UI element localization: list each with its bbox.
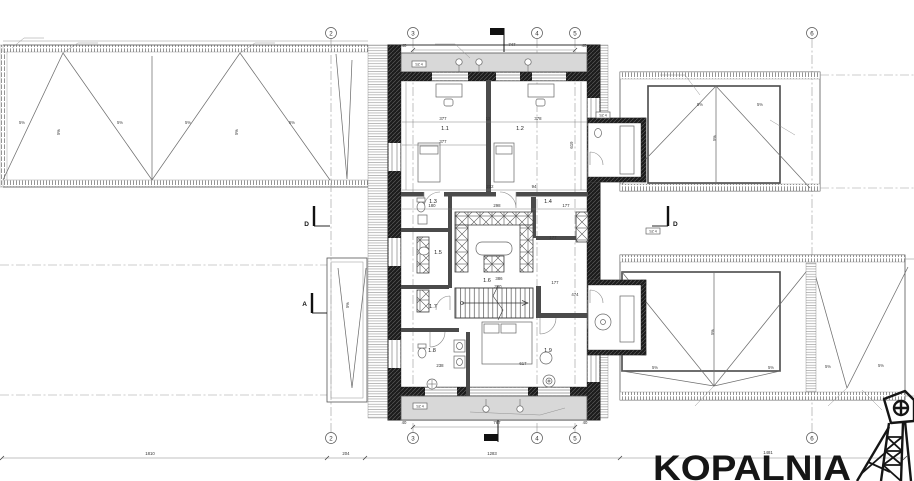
- dim-label: 180: [428, 203, 436, 208]
- logo: KOPALNIA: [653, 391, 914, 481]
- dim-label: 377: [439, 139, 447, 144]
- top-terrace: SZ 4: [401, 44, 587, 72]
- slope-label: 5%: [19, 120, 25, 125]
- grid-label-6: 6: [810, 30, 814, 37]
- slope-label: 5%: [56, 129, 61, 135]
- floor-plan-sheet: 5% 5% 5% 5% 5% 5% 5% 2 3 4 5 6 2 3 4: [0, 0, 914, 481]
- mine-headframe-icon: [857, 391, 914, 481]
- room-label-1-1: 1.1: [441, 126, 449, 132]
- dim-label: 232: [486, 184, 494, 189]
- room-label-1-8: 1.8: [428, 348, 436, 354]
- central-building: SZ 4 SZ 4: [368, 28, 608, 442]
- dim-label-total: 1810: [145, 451, 155, 456]
- grid-bubbles-bottom: 2 3 4 5 6: [326, 433, 818, 444]
- section-label-d: D: [304, 221, 309, 228]
- room-label-1-4: 1.4: [544, 199, 552, 205]
- right-roof-bottom: 5% 5% 5% 5% 5%: [620, 255, 914, 410]
- room-label-1-9: 1.9: [544, 348, 552, 354]
- dim-label: 386: [495, 276, 503, 281]
- left-roof-plan: 5% 5% 5% 5% 5% 5%: [0, 38, 368, 187]
- logo-wordmark: KOPALNIA: [653, 449, 851, 481]
- dim-label: 238: [436, 363, 444, 368]
- dim-label: 40: [402, 43, 407, 48]
- slope-label: 5%: [289, 120, 295, 125]
- dim-label: 177: [562, 203, 570, 208]
- top-dimension: 747 40 40: [402, 28, 587, 52]
- slope-label: 5%: [825, 364, 831, 369]
- slope-label: 5%: [878, 363, 884, 368]
- top-wall: [401, 72, 587, 81]
- grid-label-2: 2: [329, 435, 333, 442]
- slope-label: 5%: [712, 135, 717, 141]
- slope-label: 5%: [768, 365, 774, 370]
- dim-label: 617: [519, 361, 527, 366]
- north-flag-icon: [490, 28, 504, 52]
- right-roof-top: 5% 5% 5%: [620, 72, 914, 191]
- slope-label: 5%: [345, 302, 350, 308]
- lintel-tag: SZ 4: [416, 405, 424, 409]
- dim-label: 767: [493, 420, 501, 425]
- architectural-drawing: 5% 5% 5% 5% 5% 5% 5% 2 3 4 5 6 2 3 4: [0, 0, 914, 481]
- dim-label: 177: [549, 235, 557, 240]
- lintel-tag: SZ 4: [415, 63, 423, 67]
- grid-label-4: 4: [535, 30, 539, 37]
- dim-label: 380: [494, 284, 502, 289]
- staircase: [455, 286, 533, 320]
- lintel-tag: SZ 4: [649, 230, 657, 234]
- bottom-dimension: 767 40 40: [402, 420, 588, 442]
- dim-label: 12: [486, 116, 491, 121]
- slope-label: 5%: [757, 102, 763, 107]
- dim-label: 747: [508, 42, 516, 47]
- dim-label: 177: [551, 280, 559, 285]
- room-label-1-2: 1.2: [516, 126, 524, 132]
- dim-label: 94: [532, 184, 537, 189]
- slope-label: 5%: [185, 120, 191, 125]
- grid-label-2: 2: [329, 30, 333, 37]
- grid-bubbles-top: 2 3 4 5 6: [326, 28, 818, 39]
- dim-label: 298: [493, 203, 501, 208]
- grid-label-4: 4: [535, 435, 539, 442]
- grid-label-6: 6: [810, 435, 814, 442]
- slope-label: 5%: [117, 120, 123, 125]
- section-label-a: A: [302, 301, 307, 308]
- dim-label: 40: [402, 420, 407, 425]
- section-marker-a-left: A: [302, 293, 327, 313]
- room-label-1-6: 1.6: [483, 278, 491, 284]
- bottom-terrace: SZ 4: [401, 396, 587, 420]
- grid-label-3: 3: [411, 435, 415, 442]
- section-marker-d-right: D: [652, 206, 678, 228]
- dim-label: 378: [534, 116, 542, 121]
- room-label-1-7: 1.7: [429, 304, 437, 310]
- dim-label: 40: [582, 43, 587, 48]
- dim-label: 377: [439, 116, 447, 121]
- slope-label: 5%: [652, 365, 658, 370]
- dim-label: 474: [571, 292, 579, 297]
- grid-label-5: 5: [573, 30, 577, 37]
- grid-label-3: 3: [411, 30, 415, 37]
- slope-label: 5%: [234, 129, 239, 135]
- dim-label-total: 1283: [487, 451, 497, 456]
- section-marker-d-left: D: [304, 206, 330, 228]
- section-label-d: D: [673, 221, 678, 228]
- left-lower-roof: 5%: [0, 258, 367, 402]
- room-label-1-5: 1.5: [434, 250, 442, 256]
- wing-top-room: SZ 4: [588, 112, 646, 182]
- dim-label-total: 204: [342, 451, 350, 456]
- dim-label: 619: [569, 141, 574, 149]
- slope-label: 5%: [710, 329, 715, 335]
- grid-label-5: 5: [573, 435, 577, 442]
- dim-label: 40: [583, 420, 588, 425]
- slope-label: 5%: [697, 102, 703, 107]
- lintel-tag: SZ 4: [599, 114, 607, 118]
